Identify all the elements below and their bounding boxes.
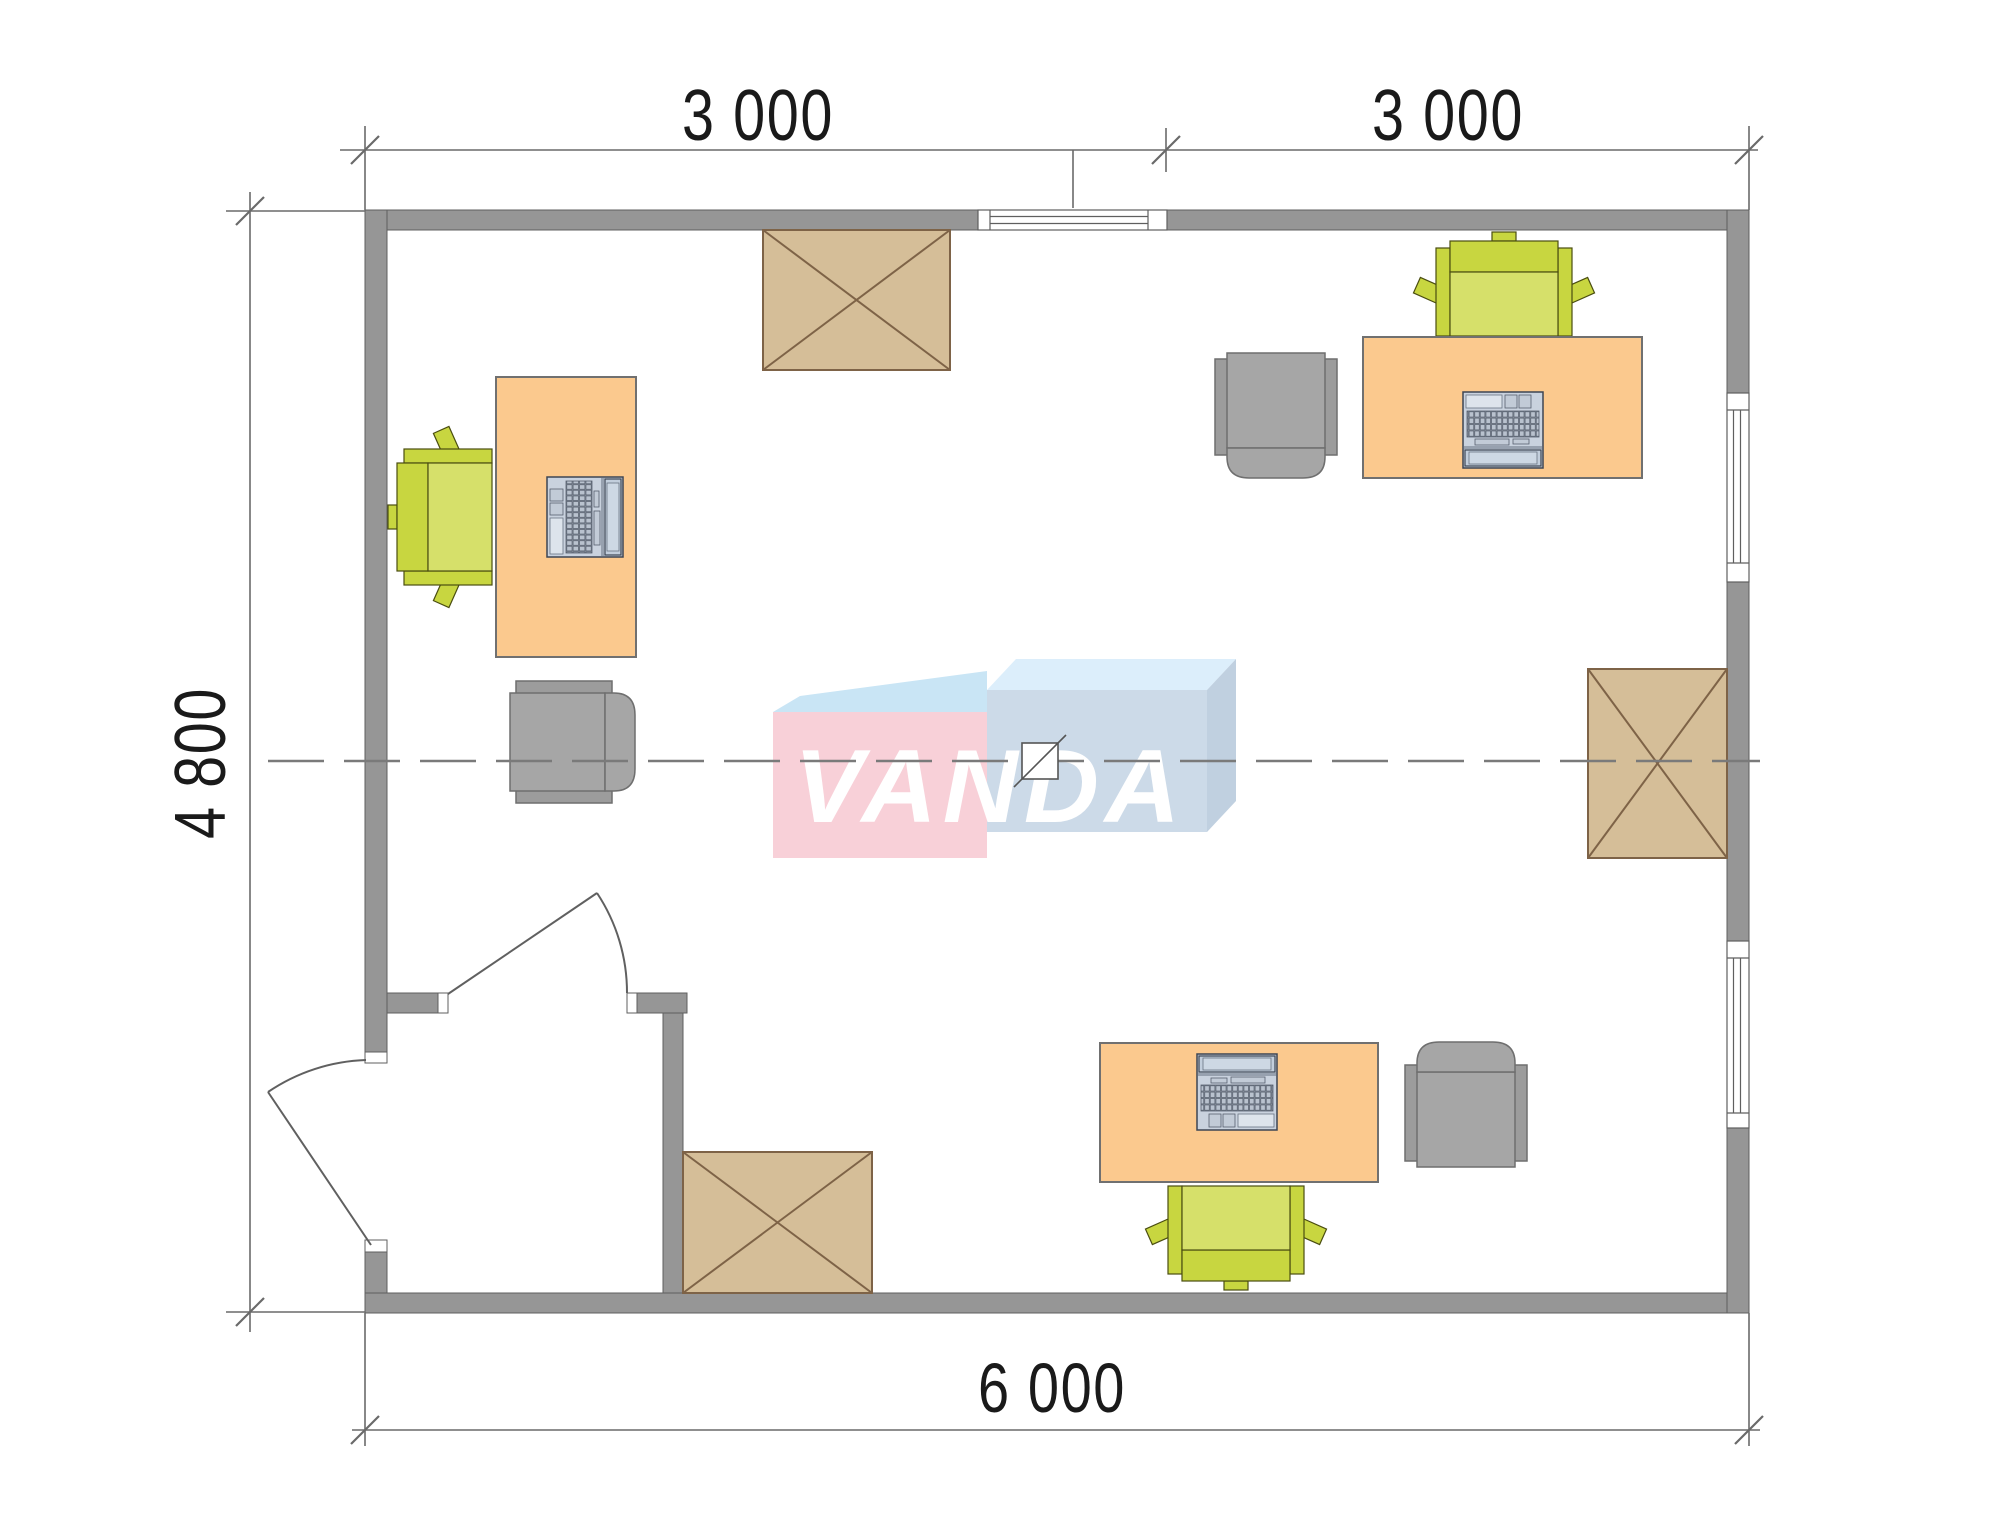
vestibule-wall-right [637, 993, 687, 1013]
wall-bottom [365, 1293, 1749, 1313]
workstation-left [388, 377, 636, 803]
dim-label-bottom: 6 000 [978, 1350, 1126, 1427]
visitor-chair [1215, 353, 1337, 478]
floor-plan: VANDA [0, 0, 2000, 1520]
laptop-icon [547, 477, 623, 557]
vestibule-wall-vertical [663, 1013, 683, 1293]
dimension-left: 4 800 [160, 192, 365, 1332]
watermark-text: VANDA [794, 729, 1186, 845]
workstation-top-right [1215, 232, 1642, 478]
interior-door [438, 893, 637, 1013]
visitor-chair [510, 681, 635, 803]
task-chair [1413, 232, 1594, 336]
door-leaf [268, 1092, 371, 1245]
task-chair [1145, 1186, 1326, 1290]
window-right-lower [1727, 941, 1749, 1128]
task-chair [388, 426, 492, 607]
vestibule-wall-left [387, 993, 438, 1013]
door-swing-arc [597, 893, 627, 993]
wall-right-lower [1727, 1128, 1749, 1313]
crossed-table-bottom [683, 1152, 872, 1293]
floor-plan-page: VANDA [0, 0, 2000, 1520]
dim-label-left: 4 800 [160, 687, 241, 839]
wall-top-left-segment [365, 210, 978, 230]
laptop-icon [1463, 392, 1543, 468]
entrance-door [268, 1052, 387, 1252]
watermark-box-right-top [987, 659, 1236, 690]
wall-right-upper [1727, 210, 1749, 393]
window-top [978, 210, 1167, 230]
watermark-box-left-top [773, 671, 987, 712]
door-jamb [438, 993, 448, 1013]
crossed-table-top [763, 230, 950, 370]
door-jamb [365, 1052, 387, 1063]
dimension-top: 3 000 3 000 [340, 75, 1763, 210]
dim-label-top-right: 3 000 [1372, 75, 1524, 156]
workstation-bottom [1100, 1042, 1527, 1290]
dim-label-top-left: 3 000 [682, 75, 834, 156]
door-leaf [448, 893, 597, 994]
wall-left-upper [365, 210, 387, 1052]
wall-top-right-segment [1167, 210, 1749, 230]
armchair [1405, 1042, 1527, 1167]
door-swing-arc [268, 1060, 366, 1092]
crossed-table-right [1588, 669, 1727, 858]
door-jamb [627, 993, 637, 1013]
window-right-upper [1727, 393, 1749, 582]
dimension-bottom: 6 000 [351, 1313, 1763, 1446]
vanda-watermark: VANDA [773, 659, 1236, 858]
center-marker [1014, 735, 1066, 787]
laptop-icon [1197, 1054, 1277, 1130]
